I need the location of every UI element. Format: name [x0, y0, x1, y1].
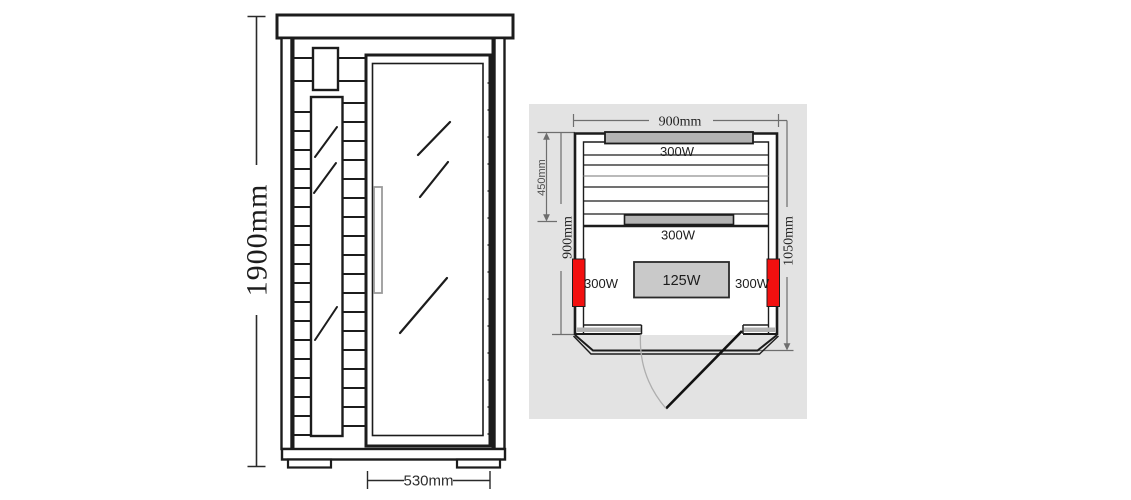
top-plan-view: 900mm 450mm 900mm 1050mm — [529, 104, 807, 419]
sauna-dimension-diagram: 1900mm — [0, 0, 1131, 500]
bench-depth-dimension-label: 450mm — [536, 159, 548, 196]
door-width-dimension-label: 530mm — [403, 473, 453, 490]
inner-depth-dimension-label: 900mm — [560, 216, 575, 259]
total-depth-dimension-label: 1050mm — [781, 216, 796, 266]
right-post — [495, 38, 505, 449]
roof-cap — [277, 15, 513, 38]
wall-slats-right-column — [343, 103, 367, 426]
wall-slats-left-column — [294, 112, 311, 435]
foot-right — [457, 460, 500, 468]
right-heater-label: 300W — [735, 276, 770, 291]
vent-box — [313, 48, 338, 90]
height-dimension-label: 1900mm — [241, 184, 274, 297]
back-heater-label: 300W — [660, 144, 695, 159]
base-plate — [282, 449, 505, 460]
diagram-canvas: 1900mm — [0, 0, 1131, 500]
bench-heater — [625, 215, 734, 225]
door-handle — [374, 187, 382, 293]
left-heater-label: 300W — [584, 276, 619, 291]
foot-left — [288, 460, 331, 468]
front-elevation-view: 1900mm — [241, 15, 514, 490]
floor-heater-label: 125W — [663, 273, 701, 289]
back-heater — [605, 132, 753, 144]
side-window — [311, 97, 343, 436]
width-dimension-label: 900mm — [659, 115, 702, 130]
left-post — [282, 38, 292, 449]
bench-heater-label: 300W — [661, 228, 696, 243]
door — [366, 55, 490, 446]
